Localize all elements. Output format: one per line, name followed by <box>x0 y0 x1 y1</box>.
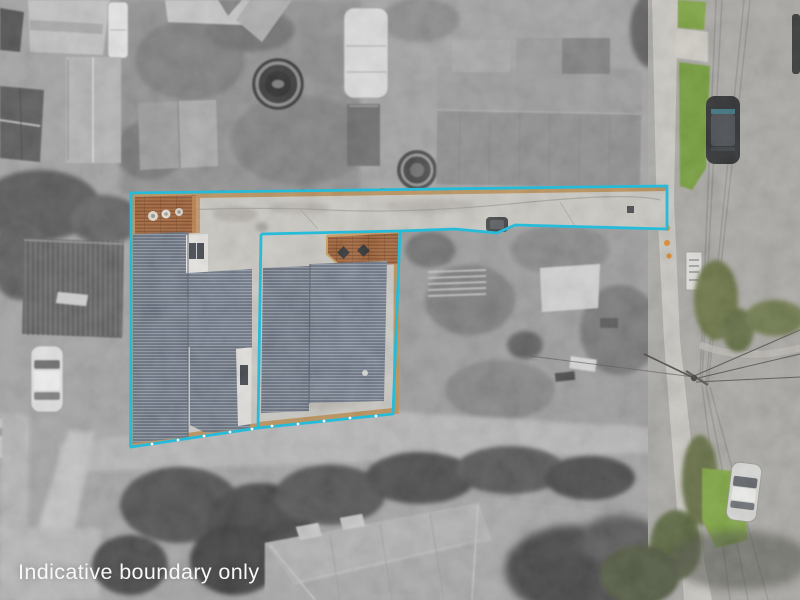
aerial-photo-canvas <box>0 0 800 600</box>
caption-indicative-boundary: Indicative boundary only <box>18 560 259 585</box>
photo-grain <box>0 0 800 600</box>
aerial-photo: Indicative boundary only <box>0 0 800 600</box>
